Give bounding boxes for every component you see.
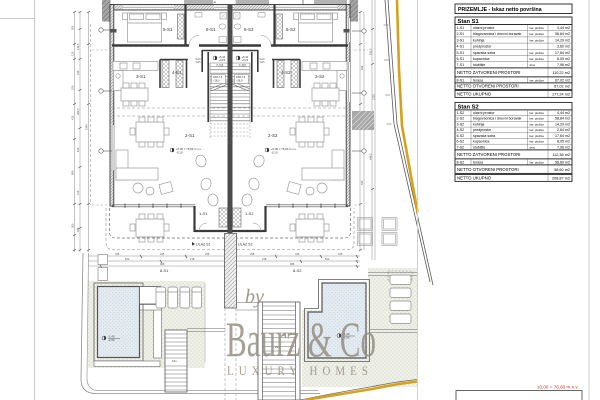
svg-text:632,5: 632,5	[369, 48, 373, 55]
svg-text:177,24 m2: 177,24 m2	[552, 92, 570, 96]
svg-text:8-S1: 8-S1	[457, 78, 465, 82]
svg-text:/ 28,0: / 28,0	[213, 79, 220, 83]
svg-text:3-S2: 3-S2	[315, 74, 325, 79]
svg-text:ker. pločice: ker. pločice	[530, 51, 545, 55]
svg-text:7-S1: 7-S1	[457, 63, 465, 67]
svg-text:968: 968	[160, 262, 165, 266]
svg-text:610: 610	[76, 147, 80, 152]
svg-text:-0,10: -0,10	[176, 151, 183, 155]
svg-text:2-S1: 2-S1	[185, 133, 195, 138]
svg-text:968: 968	[290, 262, 295, 266]
svg-text:-0,10: -0,10	[271, 151, 278, 155]
svg-text:kuhinja: kuhinja	[473, 38, 484, 42]
svg-text:112,36 m2: 112,36 m2	[552, 153, 570, 157]
svg-text:142,5: 142,5	[76, 43, 80, 50]
svg-text:14,29 m2: 14,29 m2	[555, 38, 570, 42]
svg-text:ulazni prostor: ulazni prostor	[473, 26, 495, 30]
svg-text:PRIZEMLJE - Iskaz netto površi: PRIZEMLJE - Iskaz netto površina	[458, 7, 542, 13]
svg-text:218: 218	[190, 257, 195, 261]
svg-text:7-S2: 7-S2	[457, 145, 465, 149]
svg-text:5-S2: 5-S2	[457, 134, 465, 138]
svg-text:ker. pločice: ker. pločice	[530, 140, 545, 144]
svg-text:442: 442	[360, 65, 364, 70]
svg-text:LUXURY HOMES: LUXURY HOMES	[227, 363, 373, 378]
svg-text:ker. pločice: ker. pločice	[530, 78, 545, 82]
svg-text:218: 218	[262, 257, 267, 261]
svg-text:6-S2: 6-S2	[244, 27, 254, 32]
svg-text:5x18: 5x18	[260, 59, 266, 61]
svg-text:NETTO OTVORENI PROSTORI: NETTO OTVORENI PROSTORI	[457, 167, 519, 172]
svg-text:Baurz & Co: Baurz & Co	[226, 311, 376, 367]
svg-text:NETTO ZATVORENI PROSTORI: NETTO ZATVORENI PROSTORI	[457, 70, 521, 75]
svg-text:110,22 m2: 110,22 m2	[552, 71, 570, 75]
svg-text:383,5: 383,5	[76, 108, 80, 115]
svg-text:NETTO UKUPNO: NETTO UKUPNO	[457, 176, 492, 181]
svg-text:525: 525	[360, 180, 364, 185]
svg-text:67,02 m2: 67,02 m2	[555, 78, 570, 82]
svg-text:ker. pločice: ker. pločice	[530, 32, 545, 36]
svg-text:/ 28,0: / 28,0	[236, 79, 243, 83]
svg-text:375: 375	[76, 190, 80, 195]
svg-text:ker. pločice: ker. pločice	[530, 26, 545, 30]
svg-text:5-S1: 5-S1	[457, 51, 465, 55]
svg-text:stubište: stubište	[473, 145, 485, 149]
svg-text:5x18: 5x18	[196, 59, 202, 61]
svg-text:58,84 m2: 58,84 m2	[555, 32, 570, 36]
svg-text:245: 245	[76, 70, 80, 75]
svg-text:258: 258	[250, 252, 255, 256]
svg-text:7,96 m2: 7,96 m2	[557, 145, 570, 149]
svg-text:5-S1: 5-S1	[163, 27, 173, 32]
svg-text:67,02 m2: 67,02 m2	[554, 85, 570, 89]
svg-text:6-S2: 6-S2	[457, 140, 465, 144]
svg-text:kuhinja: kuhinja	[473, 123, 484, 127]
svg-text:8-S2: 8-S2	[293, 268, 302, 273]
svg-text:345: 345	[115, 252, 120, 256]
svg-text:810: 810	[125, 257, 130, 261]
svg-text:+0,23: +0,23	[242, 58, 249, 62]
svg-text:345: 345	[295, 252, 300, 256]
svg-text:360: 360	[71, 223, 75, 228]
svg-text:6-S1: 6-S1	[206, 27, 216, 32]
svg-text:16x: 16x	[172, 359, 177, 363]
svg-text:120: 120	[71, 51, 75, 56]
svg-text:2-S2: 2-S2	[457, 117, 465, 121]
svg-text:3-S1: 3-S1	[136, 74, 146, 79]
svg-text:kupaonica: kupaonica	[473, 57, 489, 61]
svg-text:NETTO OTVORENI PROSTORI: NETTO OTVORENI PROSTORI	[457, 84, 519, 89]
svg-text:946,5: 946,5	[369, 153, 373, 160]
svg-text:258: 258	[205, 252, 210, 256]
svg-text:predprostor: predprostor	[473, 128, 492, 132]
svg-text:208,87 m2: 208,87 m2	[552, 177, 570, 181]
svg-text:Stan S2: Stan S2	[458, 104, 479, 110]
svg-text:2-S1: 2-S1	[457, 32, 465, 36]
svg-text:ker. pločice: ker. pločice	[530, 134, 545, 138]
svg-text:58,60 m2: 58,60 m2	[554, 168, 570, 172]
svg-text:345: 345	[338, 252, 343, 256]
svg-text:8-S2: 8-S2	[457, 160, 465, 164]
svg-text:810: 810	[325, 257, 330, 261]
svg-text:4-S1: 4-S1	[172, 70, 182, 75]
svg-text:blagovaonica i dnevni boravak: blagovaonica i dnevni boravak	[473, 117, 522, 121]
svg-text:4x25: 4x25	[260, 62, 266, 64]
svg-text:345: 345	[160, 252, 165, 256]
svg-text:2-S2: 2-S2	[268, 133, 278, 138]
svg-text:ulazni prostor: ulazni prostor	[473, 111, 495, 115]
svg-text:drvo: drvo	[530, 63, 536, 67]
svg-text:2,64 m2: 2,64 m2	[557, 128, 570, 132]
svg-text:8,05 m2: 8,05 m2	[557, 140, 570, 144]
svg-text:1-S2: 1-S2	[457, 111, 465, 115]
svg-text:4-S2: 4-S2	[281, 70, 291, 75]
svg-text:415: 415	[71, 115, 75, 120]
svg-text:3-S1: 3-S1	[457, 38, 465, 42]
svg-text:by: by	[245, 286, 264, 308]
svg-text:predprostor: predprostor	[473, 45, 492, 49]
svg-text:ker. pločice: ker. pločice	[530, 117, 545, 121]
svg-text:terasa: terasa	[473, 78, 483, 82]
svg-text:1940: 1940	[85, 124, 89, 130]
svg-text:blagovaonica i dnevni boravak: blagovaonica i dnevni boravak	[473, 32, 522, 36]
svg-text:7,96 m2: 7,96 m2	[557, 63, 570, 67]
svg-text:3,60 m2: 3,60 m2	[557, 45, 570, 49]
svg-text:ker. pločice: ker. pločice	[530, 38, 545, 42]
svg-text:8-S1: 8-S1	[160, 268, 169, 273]
svg-text:terasa: terasa	[473, 160, 483, 164]
svg-text:ker. pločice: ker. pločice	[530, 160, 545, 164]
svg-text:ker. pločice: ker. pločice	[530, 128, 545, 132]
svg-text:5-S2: 5-S2	[286, 27, 296, 32]
svg-text:kupaonica: kupaonica	[473, 140, 489, 144]
svg-text:ker. pločice: ker. pločice	[530, 123, 545, 127]
svg-text:drvo: drvo	[530, 145, 536, 149]
svg-text:58,60 m2: 58,60 m2	[555, 160, 570, 164]
svg-text:3-S2: 3-S2	[457, 123, 465, 127]
svg-text:4-S2: 4-S2	[457, 128, 465, 132]
svg-text:355: 355	[71, 25, 75, 30]
svg-text:17,64 m2: 17,64 m2	[555, 51, 570, 55]
svg-text:NETTO ZATVORENI PROSTORI: NETTO ZATVORENI PROSTORI	[457, 152, 521, 157]
svg-text:ker. pločice: ker. pločice	[530, 111, 545, 115]
svg-text:Stan S1: Stan S1	[458, 19, 480, 25]
svg-text:18x17,5: 18x17,5	[213, 75, 223, 79]
svg-text:960: 960	[71, 170, 75, 175]
svg-text:NETTO UKUPNO: NETTO UKUPNO	[457, 91, 492, 96]
svg-text:1-S1: 1-S1	[199, 211, 208, 216]
svg-text:4,44 m2: 4,44 m2	[557, 26, 570, 30]
svg-text:18x17,5: 18x17,5	[236, 75, 246, 79]
svg-text:ULAZ S2: ULAZ S2	[238, 243, 253, 247]
svg-text:4x25: 4x25	[196, 62, 202, 64]
svg-text:spavaća soba: spavaća soba	[473, 51, 495, 55]
svg-text:520: 520	[71, 85, 75, 90]
svg-text:1-S1: 1-S1	[457, 26, 465, 30]
svg-text:8,05 m2: 8,05 m2	[557, 57, 570, 61]
svg-text:ULAZ S1: ULAZ S1	[196, 243, 211, 247]
svg-text:14,29 m2: 14,29 m2	[555, 123, 570, 127]
svg-text:4-S1: 4-S1	[457, 45, 465, 49]
svg-text:+0,23: +0,23	[219, 58, 226, 62]
svg-text:17,64 m2: 17,64 m2	[555, 134, 570, 138]
svg-text:58,84 m2: 58,84 m2	[555, 117, 570, 121]
svg-text:4,44 m2: 4,44 m2	[557, 111, 570, 115]
svg-text:1-S2: 1-S2	[245, 211, 254, 216]
svg-text:stubište: stubište	[473, 63, 485, 67]
svg-text:7-S2: 7-S2	[239, 64, 247, 68]
svg-text:188: 188	[76, 227, 80, 232]
svg-text:±0,00 = 76,60 m.n.v.: ±0,00 = 76,60 m.n.v.	[537, 385, 579, 390]
svg-text:6-S1: 6-S1	[457, 57, 465, 61]
svg-text:1255: 1255	[372, 94, 376, 100]
svg-text:spavaća soba: spavaća soba	[473, 134, 495, 138]
svg-text:7-S1: 7-S1	[216, 64, 224, 68]
svg-text:ker. pločice: ker. pločice	[530, 57, 545, 61]
